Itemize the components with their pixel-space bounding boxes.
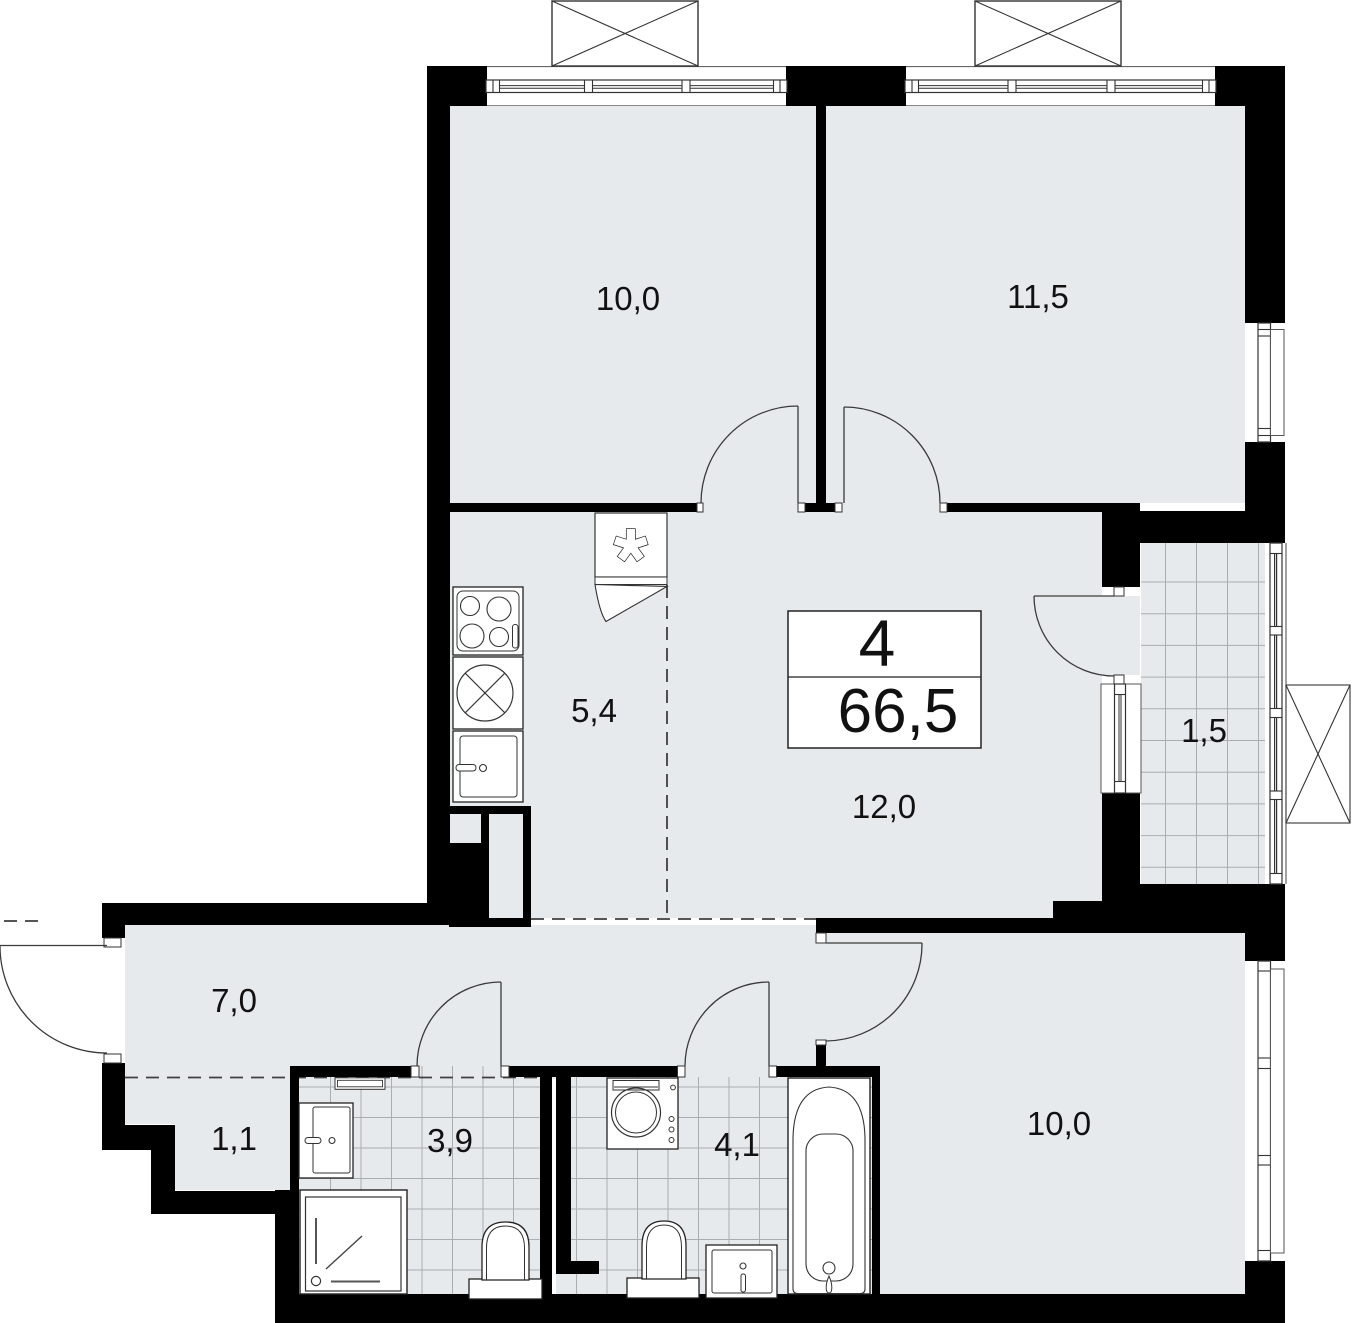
svg-text:11,5: 11,5 [1007, 278, 1069, 315]
svg-text:4: 4 [859, 606, 896, 680]
svg-text:4,1: 4,1 [714, 1126, 760, 1163]
svg-text:7,0: 7,0 [211, 982, 257, 1019]
svg-text:1,1: 1,1 [211, 1120, 257, 1157]
svg-text:10,0: 10,0 [1027, 1105, 1091, 1142]
svg-text:3,9: 3,9 [427, 1122, 473, 1159]
svg-text:1,5: 1,5 [1181, 712, 1227, 749]
svg-text:66,5: 66,5 [838, 677, 959, 746]
svg-text:5,4: 5,4 [571, 692, 617, 729]
svg-text:12,0: 12,0 [852, 788, 916, 825]
svg-text:10,0: 10,0 [596, 280, 660, 317]
